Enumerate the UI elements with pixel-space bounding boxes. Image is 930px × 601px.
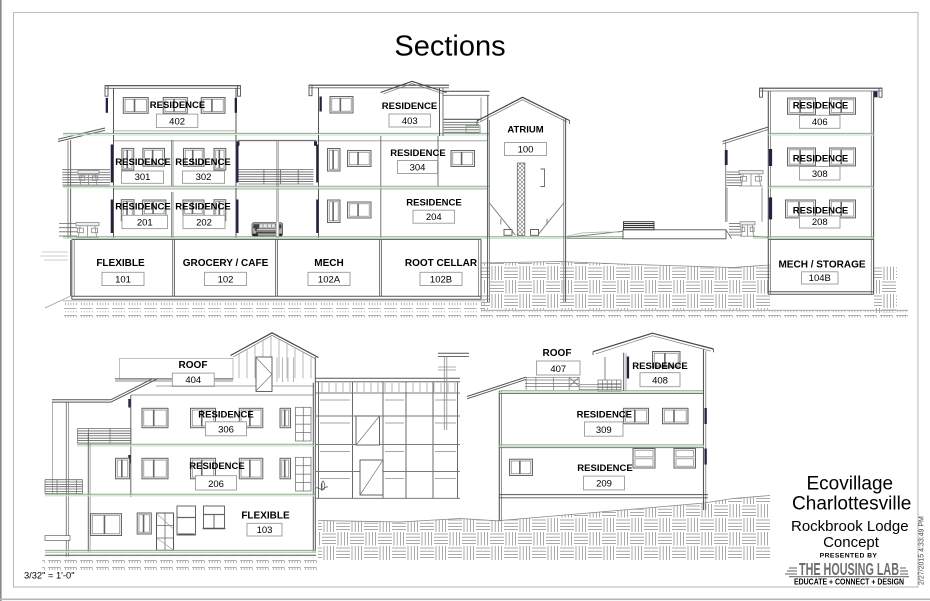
svg-text:RESIDENCE: RESIDENCE <box>115 157 170 168</box>
svg-text:402: 402 <box>169 116 185 127</box>
svg-text:RESIDENCE: RESIDENCE <box>115 202 170 213</box>
svg-text:2/27/2015 4:33:49 PM: 2/27/2015 4:33:49 PM <box>919 516 926 585</box>
svg-text:206: 206 <box>208 479 224 490</box>
svg-text:MECH: MECH <box>314 258 343 269</box>
svg-text:306: 306 <box>218 425 234 436</box>
svg-text:Ecovillage: Ecovillage <box>806 473 893 494</box>
svg-text:ROOF: ROOF <box>543 348 572 359</box>
svg-text:RESIDENCE: RESIDENCE <box>175 202 230 213</box>
svg-text:208: 208 <box>812 217 828 228</box>
svg-text:PRESENTED BY: PRESENTED BY <box>820 553 878 560</box>
svg-text:407: 407 <box>550 364 566 375</box>
svg-text:RESIDENCE: RESIDENCE <box>175 157 230 168</box>
svg-text:209: 209 <box>596 479 612 490</box>
svg-text:304: 304 <box>410 162 426 173</box>
svg-text:104B: 104B <box>809 273 831 284</box>
svg-text:EDUCATE + CONNECT + DESIGN: EDUCATE + CONNECT + DESIGN <box>794 577 904 586</box>
svg-text:RESIDENCE: RESIDENCE <box>150 100 205 111</box>
svg-text:301: 301 <box>135 172 151 183</box>
svg-text:406: 406 <box>812 117 828 128</box>
svg-text:404: 404 <box>185 375 201 386</box>
svg-text:Rockbrook Lodge: Rockbrook Lodge <box>791 518 909 535</box>
svg-text:FLEXIBLE: FLEXIBLE <box>241 510 290 521</box>
svg-text:RESIDENCE: RESIDENCE <box>382 101 437 112</box>
svg-text:302: 302 <box>196 172 212 183</box>
svg-text:408: 408 <box>652 376 668 387</box>
svg-text:RESIDENCE: RESIDENCE <box>198 409 253 420</box>
svg-text:FLEXIBLE: FLEXIBLE <box>96 258 145 269</box>
svg-text:308: 308 <box>812 169 828 180</box>
svg-text:102A: 102A <box>318 274 341 285</box>
svg-text:RESIDENCE: RESIDENCE <box>189 461 244 472</box>
svg-text:RESIDENCE: RESIDENCE <box>406 198 461 209</box>
svg-text:100: 100 <box>518 144 534 155</box>
svg-text:ATRIUM: ATRIUM <box>507 125 543 136</box>
svg-text:3/32" = 1'-0": 3/32" = 1'-0" <box>24 571 75 581</box>
svg-text:RESIDENCE: RESIDENCE <box>793 205 848 216</box>
svg-text:Concept: Concept <box>823 534 880 551</box>
svg-text:RESIDENCE: RESIDENCE <box>577 463 632 474</box>
svg-text:ROOT CELLAR: ROOT CELLAR <box>405 258 478 269</box>
svg-text:102B: 102B <box>430 274 452 285</box>
svg-text:202: 202 <box>196 217 212 228</box>
svg-text:101: 101 <box>115 274 131 285</box>
svg-text:MECH / STORAGE: MECH / STORAGE <box>778 259 865 270</box>
svg-text:RESIDENCE: RESIDENCE <box>577 410 632 421</box>
svg-text:309: 309 <box>596 425 612 436</box>
svg-text:204: 204 <box>426 212 442 223</box>
svg-text:Charlottesville: Charlottesville <box>792 493 911 514</box>
svg-text:RESIDENCE: RESIDENCE <box>390 148 445 159</box>
svg-text:RESIDENCE: RESIDENCE <box>793 100 848 111</box>
svg-text:GROCERY / CAFE: GROCERY / CAFE <box>183 258 269 269</box>
svg-text:102: 102 <box>218 274 234 285</box>
svg-text:403: 403 <box>402 116 418 127</box>
svg-text:103: 103 <box>257 525 273 536</box>
svg-text:201: 201 <box>137 217 153 228</box>
svg-text:Sections: Sections <box>394 30 505 62</box>
svg-text:RESIDENCE: RESIDENCE <box>793 154 848 165</box>
svg-text:RESIDENCE: RESIDENCE <box>632 361 687 372</box>
svg-text:ROOF: ROOF <box>179 360 208 371</box>
